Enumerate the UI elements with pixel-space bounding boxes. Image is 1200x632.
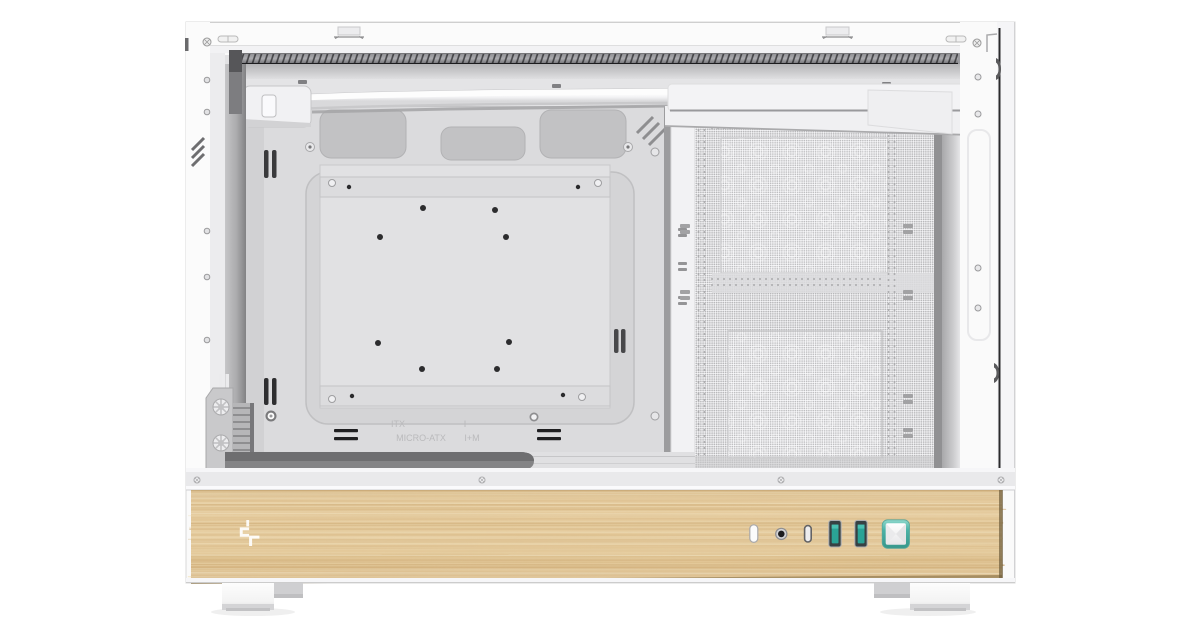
svg-text:MICRO-ATX: MICRO-ATX <box>396 433 446 443</box>
svg-text:I: I <box>464 419 467 429</box>
svg-text:I+M: I+M <box>464 433 479 443</box>
svg-text:ITX: ITX <box>391 419 405 429</box>
